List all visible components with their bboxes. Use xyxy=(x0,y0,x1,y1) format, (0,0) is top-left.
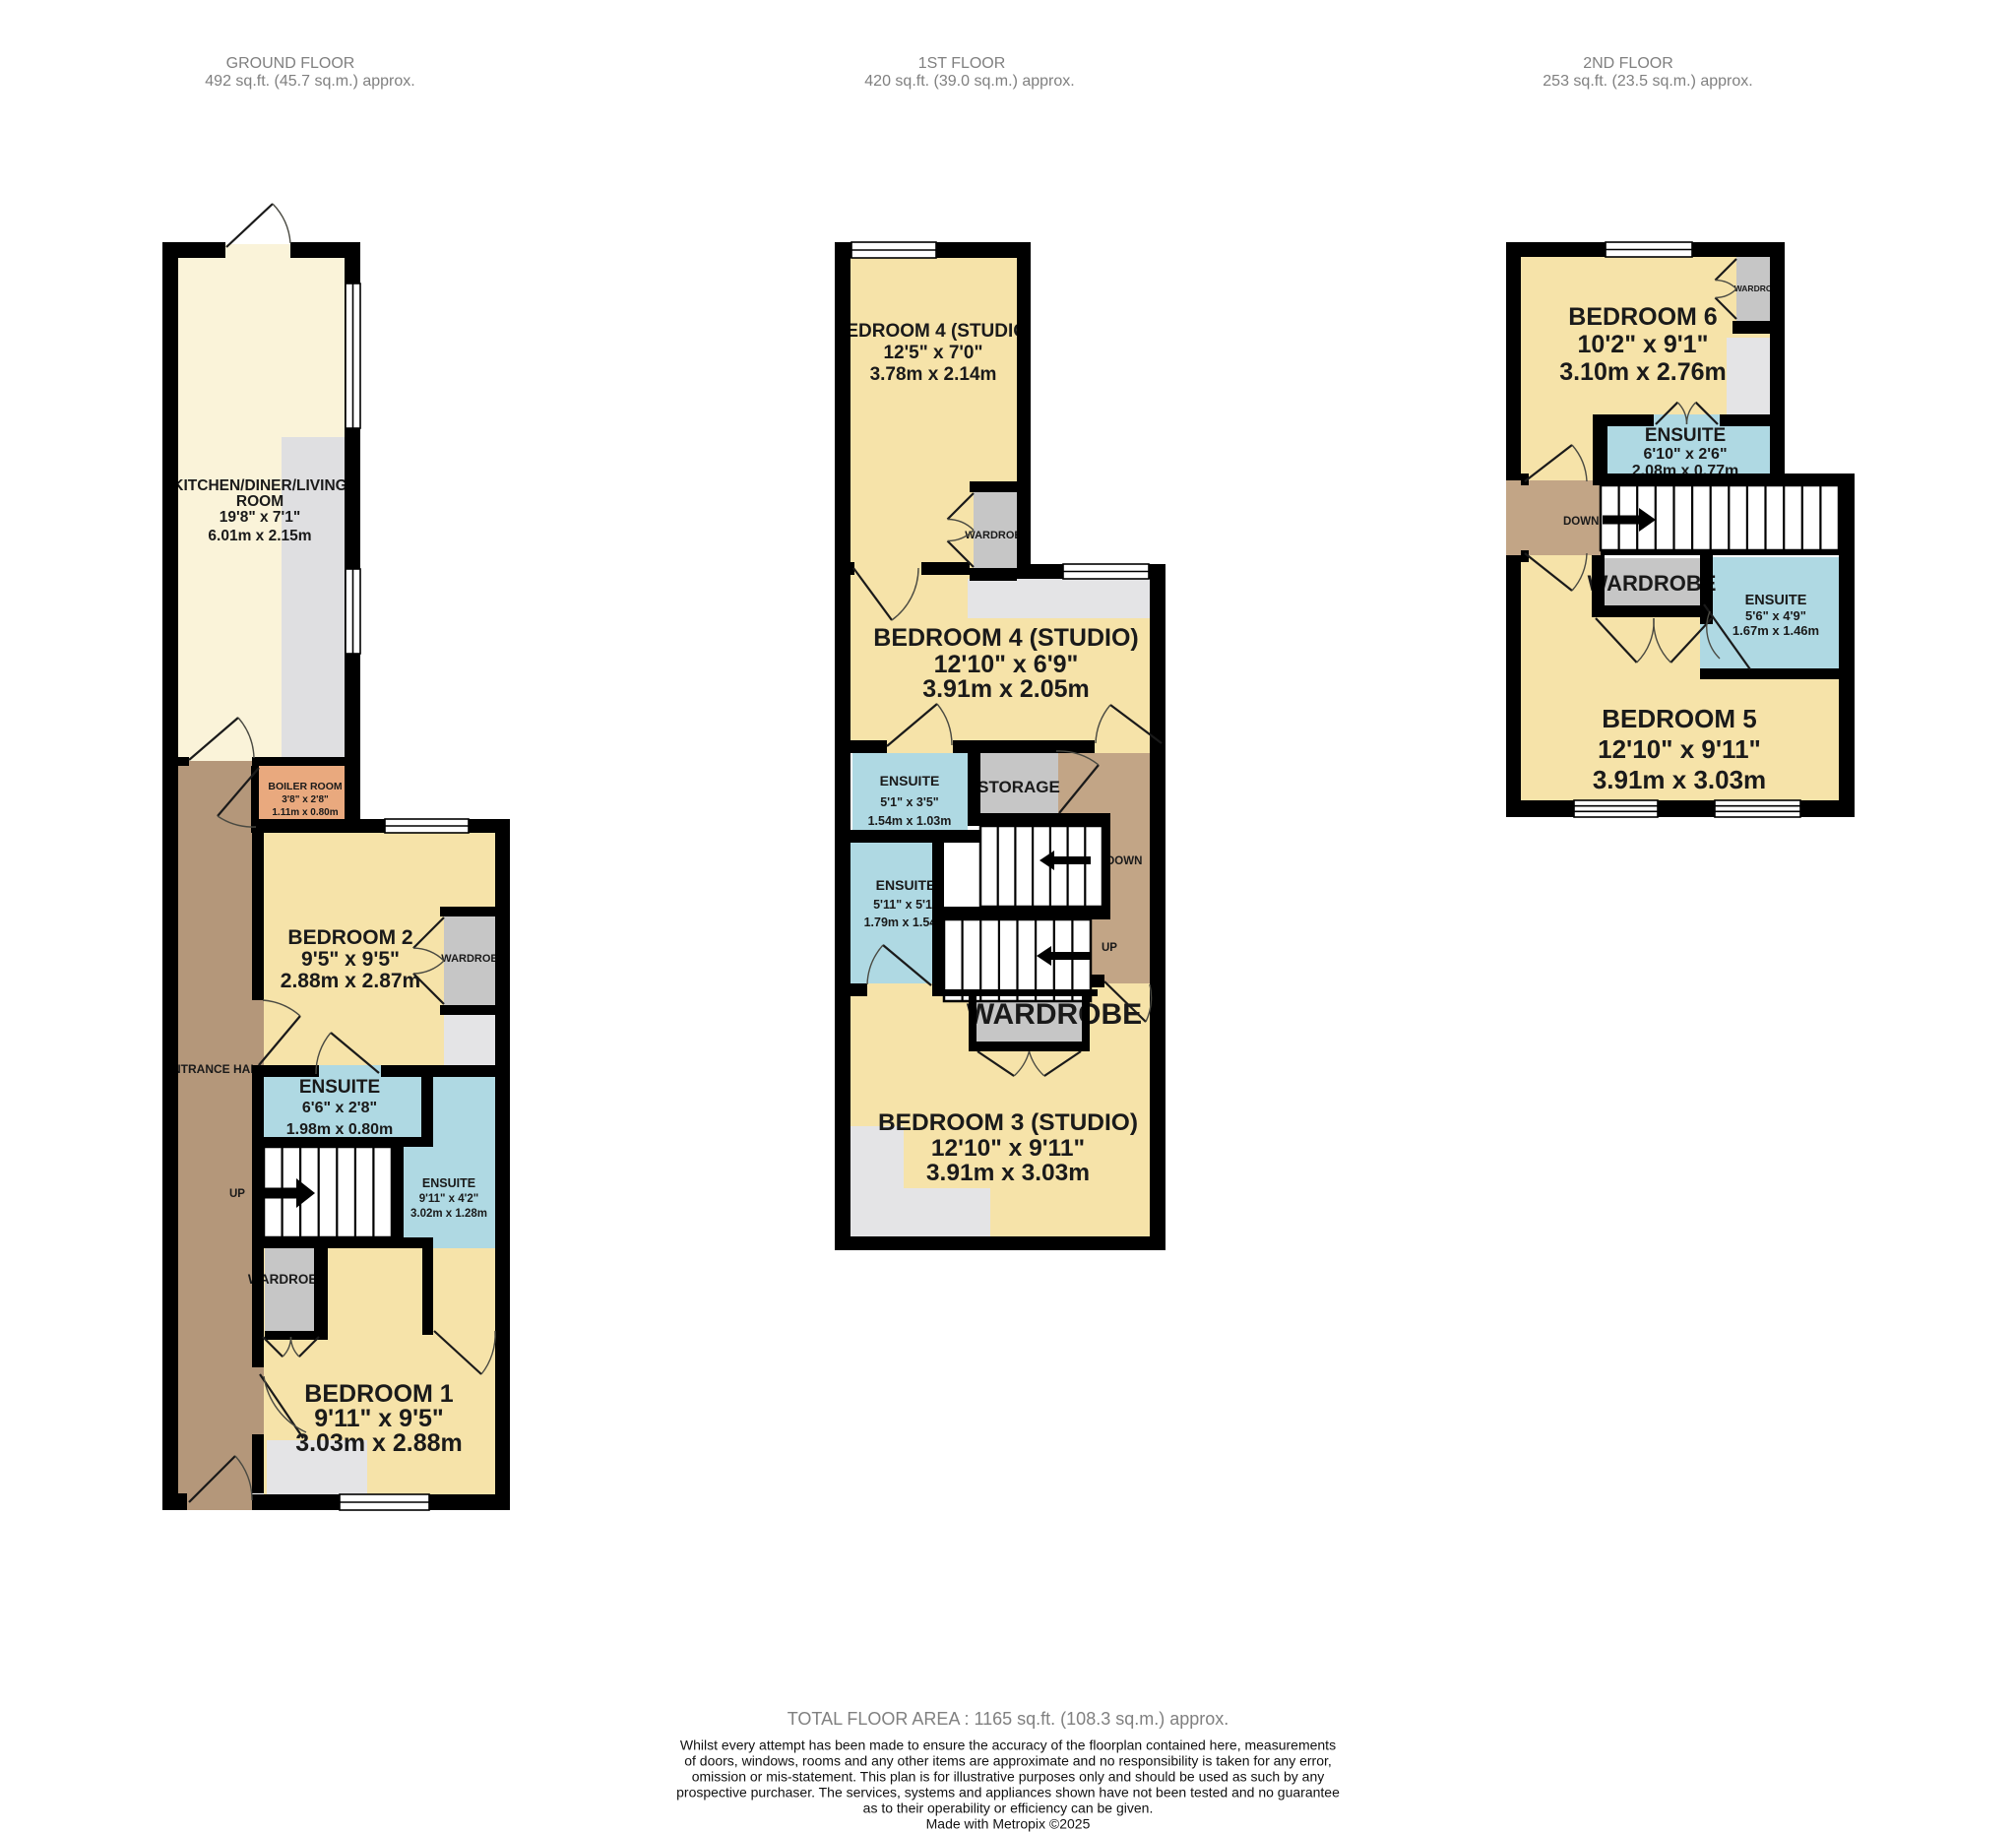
svg-text:3.10m x 2.76m: 3.10m x 2.76m xyxy=(1559,358,1727,386)
svg-text:DOWN: DOWN xyxy=(1563,516,1599,528)
svg-text:UP: UP xyxy=(229,1188,245,1200)
svg-text:omission or mis-statement. Thi: omission or mis-statement. This plan is … xyxy=(692,1769,1325,1785)
svg-text:ENSUITE: ENSUITE xyxy=(876,877,936,893)
svg-text:BEDROOM 5: BEDROOM 5 xyxy=(1602,704,1756,733)
svg-text:9'11" x 4'2": 9'11" x 4'2" xyxy=(419,1193,479,1205)
svg-text:1.54m x 1.03m: 1.54m x 1.03m xyxy=(868,814,952,828)
svg-text:ENTRANCE HALL: ENTRANCE HALL xyxy=(164,1062,265,1076)
svg-text:BEDROOM 6: BEDROOM 6 xyxy=(1568,303,1717,331)
svg-text:12'10" x 9'11": 12'10" x 9'11" xyxy=(1598,734,1761,764)
svg-text:as to their operability or eff: as to their operability or efficiency ca… xyxy=(863,1800,1154,1816)
svg-text:1ST FLOOR: 1ST FLOOR xyxy=(918,55,1006,72)
svg-text:3.91m x 3.03m: 3.91m x 3.03m xyxy=(926,1160,1090,1186)
svg-text:1.67m x 1.46m: 1.67m x 1.46m xyxy=(1732,623,1819,638)
svg-text:UP: UP xyxy=(1102,942,1117,954)
svg-text:prospective purchaser. The ser: prospective purchaser. The services, sys… xyxy=(676,1785,1340,1800)
svg-text:2.88m x 2.87m: 2.88m x 2.87m xyxy=(281,970,420,992)
svg-text:ROOM: ROOM xyxy=(236,493,283,510)
svg-text:19'8" x 7'1": 19'8" x 7'1" xyxy=(220,509,300,526)
svg-text:6.01m x 2.15m: 6.01m x 2.15m xyxy=(208,528,311,544)
svg-text:420 sq.ft. (39.0 sq.m.) approx: 420 sq.ft. (39.0 sq.m.) approx. xyxy=(864,73,1074,90)
svg-text:BEDROOM 4 (STUDIO): BEDROOM 4 (STUDIO) xyxy=(873,624,1138,652)
svg-text:DOWN: DOWN xyxy=(1106,855,1142,867)
svg-text:12'10" x 6'9": 12'10" x 6'9" xyxy=(934,651,1079,678)
svg-text:253 sq.ft. (23.5 sq.m.) approx: 253 sq.ft. (23.5 sq.m.) approx. xyxy=(1543,73,1752,90)
svg-text:9'11" x 9'5": 9'11" x 9'5" xyxy=(314,1405,444,1432)
svg-text:1.98m x 0.80m: 1.98m x 0.80m xyxy=(286,1121,394,1138)
svg-text:492 sq.ft. (45.7 sq.m.) approx: 492 sq.ft. (45.7 sq.m.) approx. xyxy=(205,73,414,90)
svg-text:STORAGE: STORAGE xyxy=(977,778,1060,796)
svg-text:BOILER ROOM: BOILER ROOM xyxy=(268,781,343,792)
svg-text:TOTAL FLOOR AREA : 1165 sq.ft.: TOTAL FLOOR AREA : 1165 sq.ft. (108.3 sq… xyxy=(787,1709,1229,1729)
svg-text:6'10" x 2'6": 6'10" x 2'6" xyxy=(1643,446,1727,463)
svg-text:Whilst every attempt has been: Whilst every attempt has been made to en… xyxy=(680,1737,1336,1753)
svg-text:of doors, windows, rooms and a: of doors, windows, rooms and any other i… xyxy=(684,1753,1332,1769)
svg-text:5'1" x 3'5": 5'1" x 3'5" xyxy=(880,795,939,809)
svg-text:BEDROOM 3 (STUDIO): BEDROOM 3 (STUDIO) xyxy=(878,1109,1138,1136)
svg-text:10'2" x 9'1": 10'2" x 9'1" xyxy=(1578,331,1709,358)
svg-text:ENSUITE: ENSUITE xyxy=(422,1176,475,1190)
svg-text:3.03m x 2.88m: 3.03m x 2.88m xyxy=(295,1429,463,1457)
svg-text:3.91m x 2.05m: 3.91m x 2.05m xyxy=(922,675,1090,703)
svg-text:9'5" x 9'5": 9'5" x 9'5" xyxy=(301,948,400,971)
svg-text:ENSUITE: ENSUITE xyxy=(1645,425,1726,446)
svg-text:WARDROBE: WARDROBE xyxy=(1588,571,1717,596)
svg-text:5'6" x 4'9": 5'6" x 4'9" xyxy=(1745,608,1806,623)
svg-text:KITCHEN/DINER/LIVING: KITCHEN/DINER/LIVING xyxy=(172,477,346,494)
svg-text:GROUND FLOOR: GROUND FLOOR xyxy=(226,55,355,72)
svg-text:ENSUITE: ENSUITE xyxy=(299,1077,380,1098)
svg-text:3.78m x 2.14m: 3.78m x 2.14m xyxy=(870,364,997,385)
svg-text:3'8" x 2'8": 3'8" x 2'8" xyxy=(282,794,329,805)
svg-text:3.91m x 3.03m: 3.91m x 3.03m xyxy=(1593,765,1766,794)
svg-text:BEDROOM 1: BEDROOM 1 xyxy=(304,1380,454,1408)
svg-text:BEDROOM 2: BEDROOM 2 xyxy=(287,926,412,949)
svg-text:5'11" x 5'1": 5'11" x 5'1" xyxy=(873,898,938,912)
svg-text:ENSUITE: ENSUITE xyxy=(1745,593,1807,608)
svg-text:ENSUITE: ENSUITE xyxy=(880,773,940,789)
svg-text:WARDROBE: WARDROBE xyxy=(967,998,1142,1031)
svg-text:Made with Metropix ©2025: Made with Metropix ©2025 xyxy=(926,1816,1091,1832)
svg-text:3.02m x 1.28m: 3.02m x 1.28m xyxy=(410,1208,487,1220)
svg-text:6'6" x 2'8": 6'6" x 2'8" xyxy=(302,1100,377,1116)
svg-text:2ND FLOOR: 2ND FLOOR xyxy=(1583,55,1673,72)
svg-text:12'10" x 9'11": 12'10" x 9'11" xyxy=(931,1135,1085,1162)
svg-text:1.11m x 0.80m: 1.11m x 0.80m xyxy=(272,807,338,818)
svg-text:BEDROOM 4 (STUDIO): BEDROOM 4 (STUDIO) xyxy=(833,321,1035,342)
svg-text:12'5" x 7'0": 12'5" x 7'0" xyxy=(883,343,982,363)
